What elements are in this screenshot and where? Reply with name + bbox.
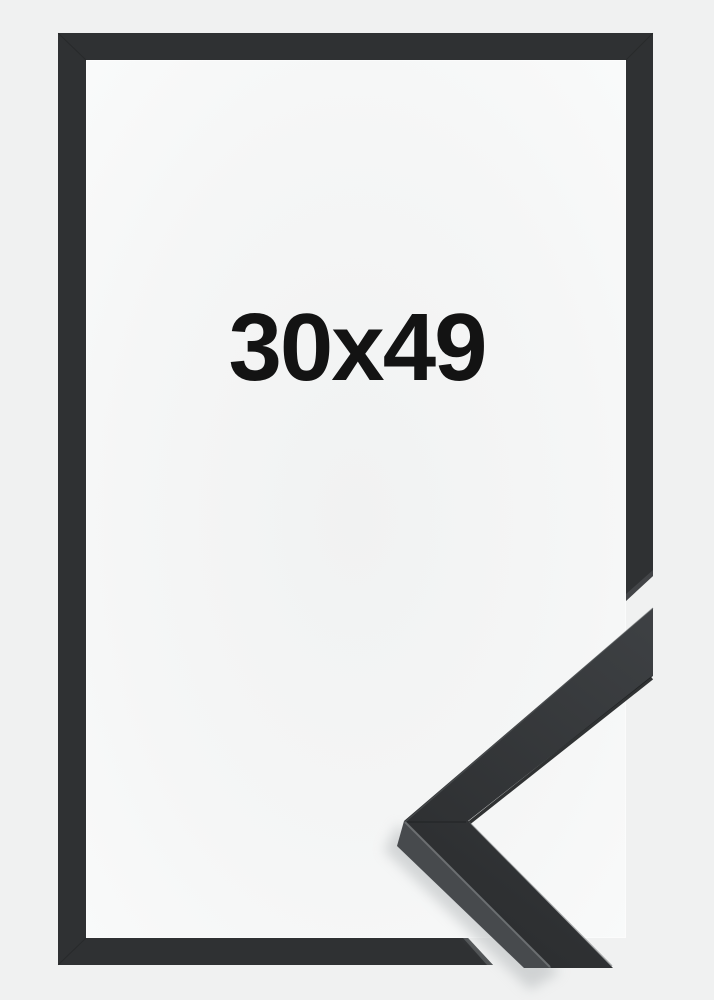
frame-product-photo: 30x49 <box>0 0 714 1000</box>
frame-top-bar <box>58 33 653 60</box>
size-label: 30x49 <box>229 300 486 396</box>
frame-illustration <box>0 0 714 1000</box>
frame-left-bar <box>58 33 86 965</box>
frame-bottom-bar-mitered <box>58 938 493 965</box>
frame-right-bar-mitered <box>626 33 653 601</box>
frame-paper-insert <box>86 60 626 938</box>
